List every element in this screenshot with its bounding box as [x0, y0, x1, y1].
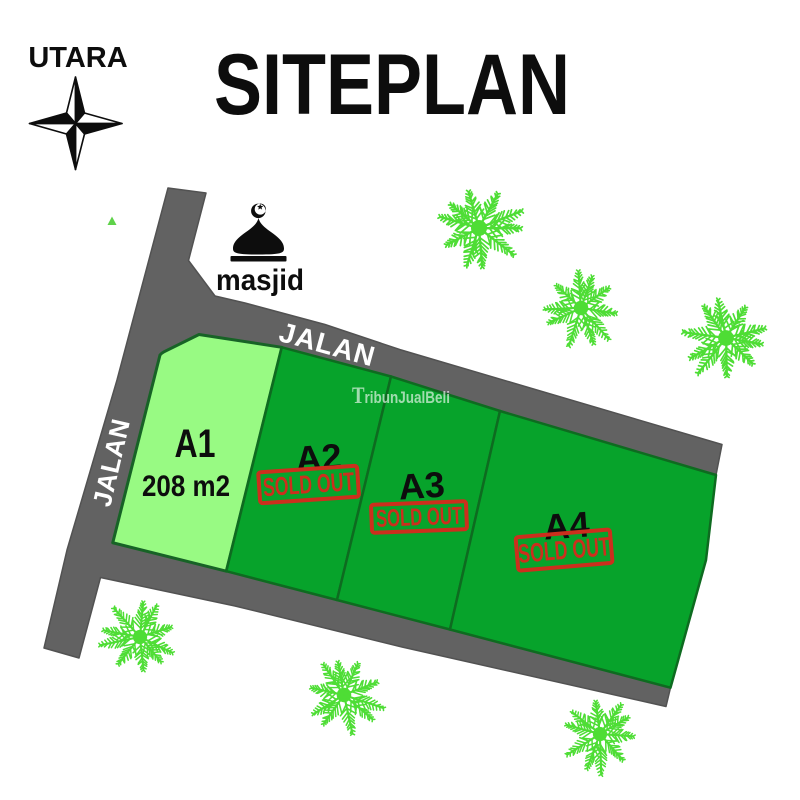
- svg-text:UTARA: UTARA: [28, 42, 127, 74]
- svg-text:SOLD OUT: SOLD OUT: [376, 503, 463, 533]
- svg-text:SITEPLAN: SITEPLAN: [214, 37, 570, 133]
- svg-text:SOLD OUT: SOLD OUT: [262, 467, 355, 502]
- svg-text:masjid: masjid: [216, 264, 304, 297]
- svg-text:A1: A1: [175, 422, 216, 466]
- svg-text:208 m2: 208 m2: [142, 470, 230, 503]
